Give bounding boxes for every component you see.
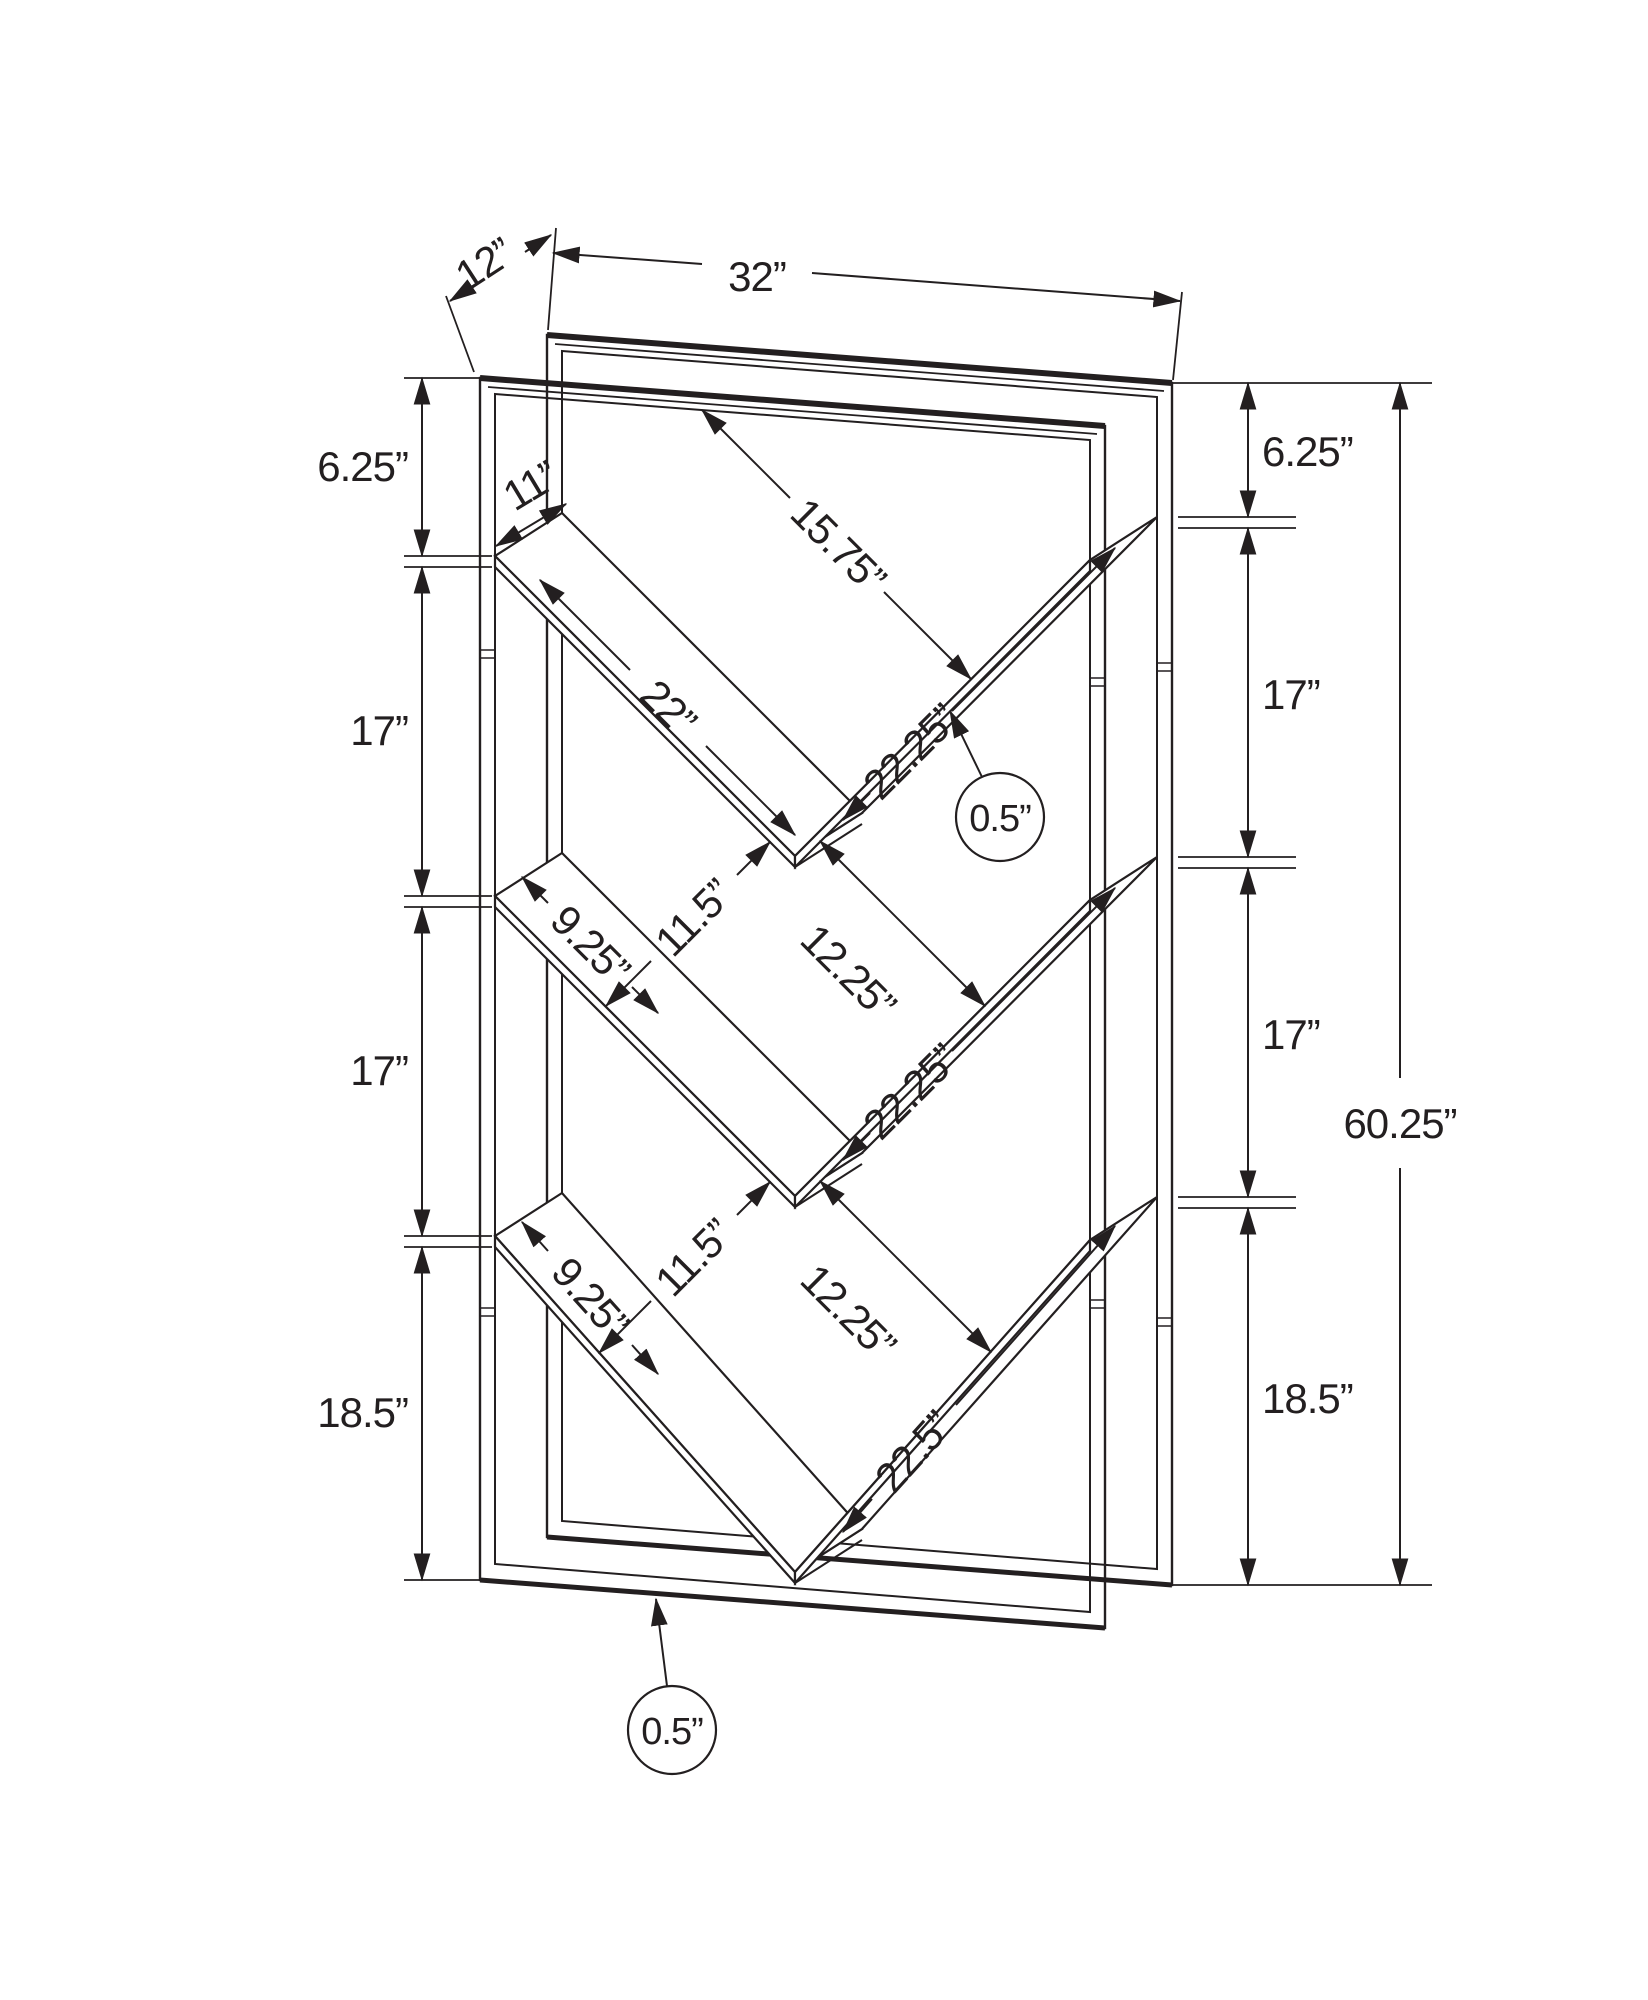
dim-right-17-b: 17” [1262,1011,1320,1058]
dim-depth: 12” [447,228,521,299]
dim-left-6-25: 6.25” [317,443,408,490]
dim-gap-left-2: 11.5” [646,1210,741,1305]
left-dimension-column: 6.25” 17” 17” 18.5” [317,378,492,1580]
dim-right-6-25: 6.25” [1262,428,1353,475]
dim-right-18-5: 18.5” [1262,1375,1353,1422]
top-depth-dimension: 12” [446,228,551,372]
dim-total-height: 60.25” [1343,1100,1456,1147]
dim-shelf2-right-length: 22.25” [854,1035,967,1148]
dim-left-17-a: 17” [350,707,408,754]
right-dimension-column: 6.25” 17” 17” 18.5” [1160,383,1432,1585]
dim-width: 32” [728,253,786,300]
v-shelf-2 [495,853,1157,1207]
total-height-dimension: 60.25” [1343,383,1456,1585]
dim-gap-right-1: 12.25” [792,915,905,1028]
dim-left-18-5: 18.5” [317,1389,408,1436]
dim-gap-right-2: 12.25” [792,1255,905,1368]
dim-left-17-b: 17” [350,1047,408,1094]
bottom-thickness-callout: 0.5” [628,1599,716,1774]
dim-shelf-thickness: 0.5” [969,798,1031,840]
shelf-thickness-callout: 0.5” [950,711,1044,861]
dim-bottom-thickness: 0.5” [641,1711,703,1753]
dim-right-17-a: 17” [1262,671,1320,718]
dim-top-opening: 15.75” [782,489,895,602]
bookcase-dimension-diagram: 6.25” 17” 17” 18.5” 6.25” 17” 17” 18.5” … [0,0,1648,2000]
bookcase-dimension-diagram-page: 6.25” 17” 17” 18.5” 6.25” 17” 17” 18.5” … [0,0,1648,2000]
